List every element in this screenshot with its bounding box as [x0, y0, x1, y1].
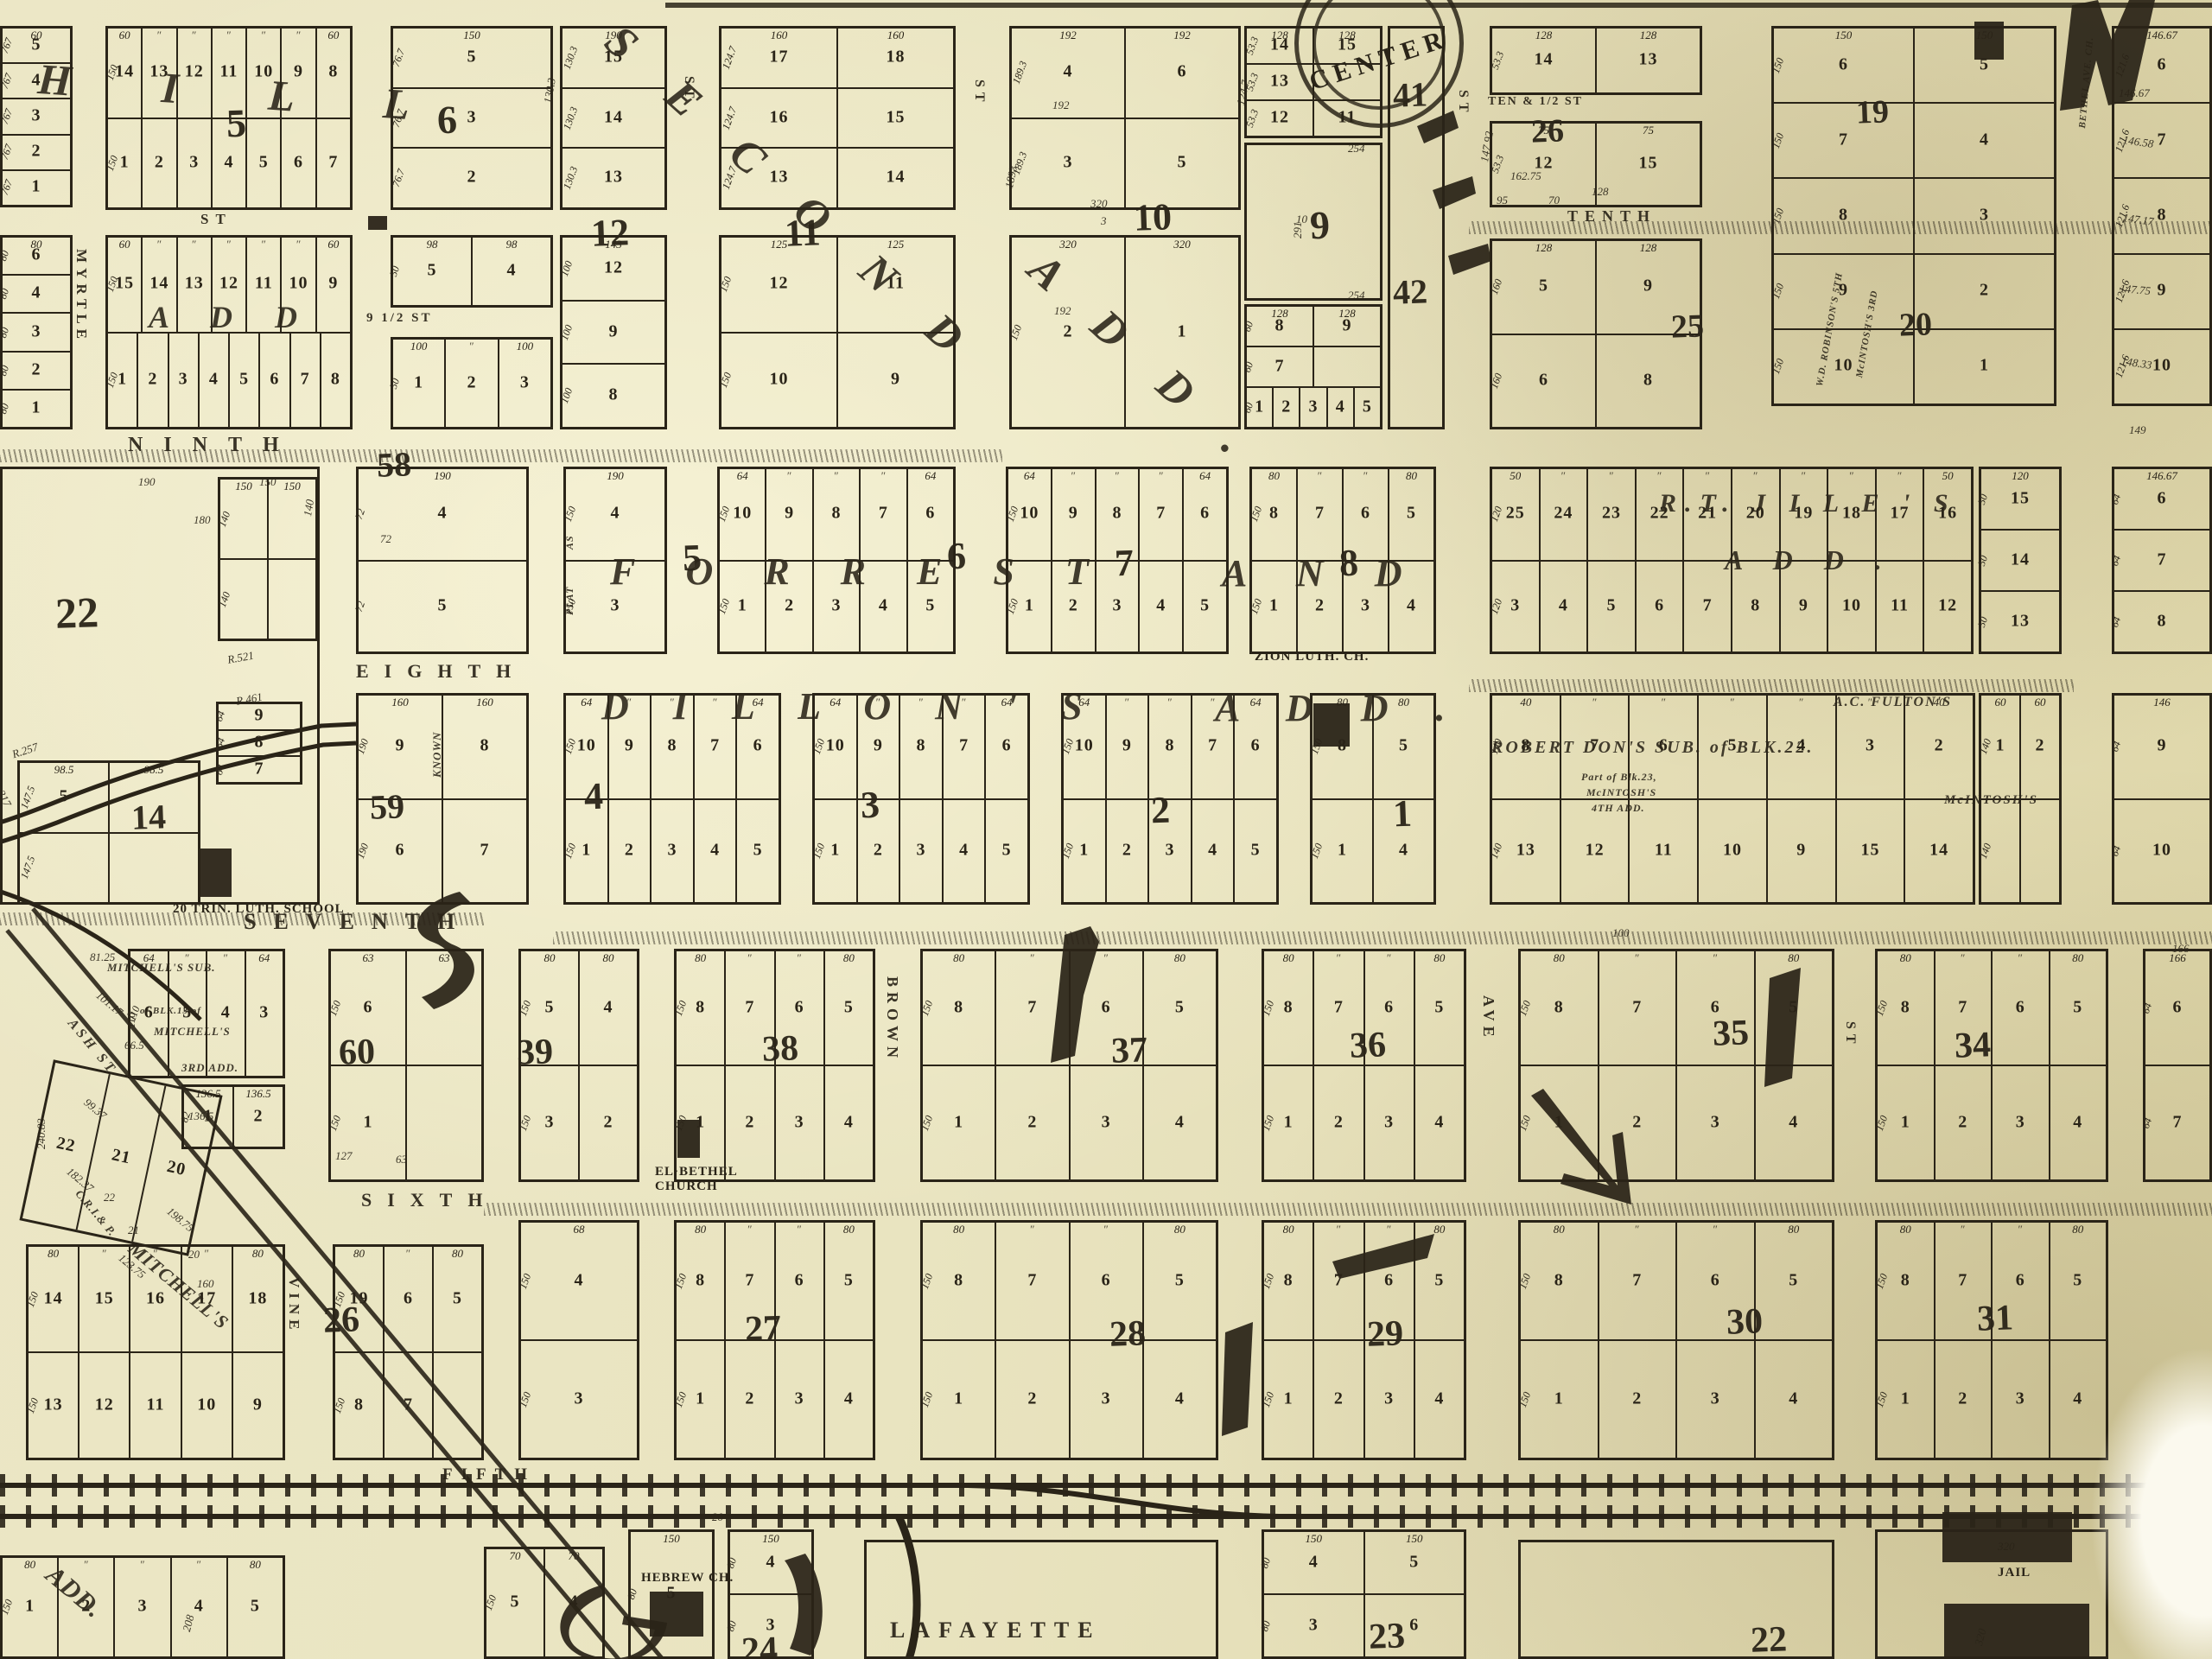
lot-number: 2 — [1314, 1389, 1363, 1408]
lot-cell: 3 — [1069, 1066, 1142, 1179]
lot-number: 6 — [1344, 504, 1388, 524]
lot-cell: 4 — [1138, 562, 1182, 652]
lot-cell: 864 — [219, 731, 300, 756]
lot-number: 3 — [1096, 595, 1139, 615]
print-smudge — [484, 1203, 2212, 1216]
lot-number: 3 — [566, 595, 664, 615]
lot-cell: 17160124.7 — [721, 29, 836, 87]
city-block: 8801507″6″5801150234 — [1875, 1220, 2108, 1460]
lot-number: 12 — [721, 274, 836, 294]
dimension-number: 10 — [1296, 213, 1307, 226]
landmark-label: EL·BETHEL CHURCH — [655, 1165, 738, 1194]
lot-dim-width: 60 — [108, 238, 141, 251]
lot-number: 3 — [1071, 1112, 1142, 1132]
railroad-rail-upper — [0, 1483, 2212, 1488]
lot-number: 10 — [1699, 840, 1766, 860]
lot-number: 3 — [1677, 1389, 1754, 1408]
lot-dim-ditto: ″ — [776, 1223, 823, 1236]
lot-cell: 13150 — [29, 1353, 78, 1458]
block-row: 1150234 — [1878, 1339, 2106, 1458]
lot-number: 15 — [838, 107, 953, 127]
block-number: 28 — [1109, 1313, 1147, 1355]
lot-number: 3 — [169, 369, 198, 389]
lot-dim-ditto: ″ — [282, 29, 315, 42]
lot-dim-width: 98 — [393, 238, 471, 251]
lot-cell: 4 — [1191, 800, 1234, 903]
lot-cell: 3 — [1363, 1341, 1414, 1458]
lot-cell: 4 — [1142, 1066, 1216, 1179]
lot-number: 9 — [766, 504, 811, 524]
lot-number: 12 — [563, 257, 664, 277]
lot-number: 3 — [499, 372, 550, 392]
city-block: 1214310091008100 — [560, 235, 667, 429]
lot-dim-ditto: ″ — [1599, 1223, 1676, 1236]
lot-number: 7 — [1298, 504, 1342, 524]
block-row: 1150234 — [923, 1339, 1216, 1458]
landmark-label: HEBREW CH. — [641, 1571, 734, 1586]
city-block: 151205014501350 — [1979, 467, 2062, 654]
dimension-number: 63 — [396, 1153, 407, 1166]
lot-cell: 8″ — [1147, 696, 1191, 798]
print-smudge — [1469, 679, 2074, 692]
lot-number: 6 — [1071, 1270, 1142, 1290]
lot-dim-ditto: ″ — [1314, 1223, 1363, 1236]
lot-dim-width: 146.67 — [2114, 469, 2209, 483]
lot-cell: 2″ — [444, 340, 497, 427]
lot-number: 7 — [996, 1270, 1068, 1290]
lot-cell: 1480150 — [29, 1247, 78, 1351]
lot-cell: 240 — [1904, 696, 1973, 798]
lot-number: 5 — [1184, 595, 1226, 615]
block-row: 415080 — [730, 1532, 811, 1593]
lot-dim-width: 150 — [393, 29, 550, 42]
landmark-building — [1313, 703, 1350, 747]
street-label: MYRTLE — [73, 249, 90, 344]
lot-cell: 2 — [1598, 1066, 1676, 1179]
lot-number: 5 — [1588, 595, 1635, 615]
street-label: EIGHTH — [356, 660, 526, 683]
lot-cell: 7″ — [1138, 469, 1182, 560]
lot-number: 2 — [143, 152, 175, 172]
lot-cell: 15 — [836, 89, 953, 148]
lot-cell: 6146.6764 — [2114, 469, 2209, 529]
lot-number: 2 — [393, 168, 550, 188]
print-smudge — [0, 449, 1002, 462]
lot-dim-width: 160 — [721, 29, 836, 42]
lot-cell: 5 — [228, 334, 258, 428]
block-row: 1150234 — [677, 1339, 873, 1458]
lot-cell: 964 — [219, 704, 300, 729]
dimension-number: 147.75 — [2120, 282, 2152, 298]
lot-cell: 13130.3 — [563, 149, 664, 207]
lot-number: 4 — [1192, 840, 1234, 860]
lot-cell: 468150 — [521, 1223, 637, 1339]
lot-dim-width: 100 — [499, 340, 550, 353]
city-block: 41508051503806 — [1262, 1529, 1466, 1659]
lot-number: 3 — [1300, 397, 1325, 416]
lot-dim-width: 80 — [1415, 951, 1464, 965]
lot-number: 7 — [1684, 595, 1731, 615]
lot-number: 4 — [213, 152, 245, 172]
block-row: 764 — [219, 755, 300, 782]
lot-cell: 880150 — [1252, 469, 1296, 560]
lot-number: 6 — [260, 369, 289, 389]
lot-cell: 580 — [1754, 951, 1833, 1065]
lot-dim-ditto: ″ — [1935, 951, 1992, 965]
lot-dim-width: 60 — [317, 238, 350, 251]
landmark-building — [1944, 1604, 2089, 1657]
lot-dim-width: 80 — [1144, 1223, 1216, 1236]
lot-number: 1 — [1915, 356, 2054, 376]
street-label: 9 1/2 ST — [366, 311, 433, 326]
dimension-number: 150 — [259, 475, 276, 489]
lot-cell: 598.5147.5 — [20, 763, 108, 832]
lot-number: 6 — [1126, 62, 1238, 82]
lot-cell: 4 — [1754, 1341, 1833, 1458]
lot-number: 5 — [1492, 276, 1595, 296]
lot-number: 4 — [1756, 1389, 1833, 1408]
lot-number: 6 — [385, 1288, 432, 1308]
lot-cell: 280 — [3, 353, 70, 389]
street-label: ST — [971, 79, 987, 107]
lot-number: 8 — [321, 369, 350, 389]
dimension-number: 240.83 — [35, 1118, 48, 1149]
lot-cell: 10 — [181, 1353, 232, 1458]
lot-dim-width: 80 — [3, 238, 70, 251]
city-block: 8801507″6″5801150234 — [1875, 949, 2108, 1182]
block-number: 5 — [682, 536, 702, 581]
lot-cell: 150140 — [220, 480, 267, 558]
lot-dim-width: 80 — [1521, 951, 1598, 965]
lot-dim-width: 128 — [1492, 29, 1595, 42]
lot-number: 10 — [182, 1395, 232, 1414]
lot-number: 3 — [1149, 840, 1191, 860]
lot-dim-ditto: ″ — [996, 951, 1068, 965]
lot-number: 9 — [609, 736, 651, 756]
lot-cell: 5 — [1233, 800, 1276, 903]
block-number: 7 — [1114, 541, 1135, 586]
lot-dim-ditto: ″ — [1935, 1223, 1992, 1236]
lot-number: 8 — [814, 504, 859, 524]
lot-number: 5 — [2050, 1270, 2107, 1290]
lot-number: 6 — [1365, 1270, 1414, 1290]
lot-cell: 9 — [1766, 800, 1835, 903]
lot-number: 5 — [393, 47, 550, 67]
lot-dim-ditto: ″ — [726, 1223, 773, 1236]
lot-number: 6 — [1235, 736, 1276, 756]
lot-cell: 3189.3 — [1012, 119, 1124, 208]
lot-number: 7 — [726, 997, 773, 1017]
print-smudge — [1469, 221, 2212, 234]
lot-cell: 3 — [168, 334, 198, 428]
lot-cell: 1253.3 — [1247, 101, 1313, 136]
lot-number: 12 — [213, 274, 245, 294]
addition-name: A D D . — [1725, 544, 1894, 576]
landmark-building — [368, 216, 387, 230]
dimension-number: 320 — [1090, 197, 1108, 211]
lot-dim-width: 128 — [1597, 241, 1700, 255]
lot-number: 2 — [2021, 736, 2059, 756]
block-row: 71504 — [1774, 102, 2054, 177]
lot-number: 4 — [521, 1270, 637, 1290]
addition-name: A D D — [149, 299, 315, 335]
lot-dim-width: 64 — [720, 469, 765, 483]
lot-cell: 4 — [823, 1066, 873, 1179]
lot-cell: 160 — [1247, 388, 1272, 427]
lot-number: 7 — [1599, 997, 1676, 1017]
lot-dim-ditto: ″ — [1107, 696, 1148, 709]
lot-number: 4 — [200, 369, 228, 389]
block-row: 8801507″6″580 — [1878, 951, 2106, 1065]
lot-dim-width: 136.5 — [234, 1087, 283, 1101]
lot-cell: 276.7 — [393, 149, 550, 207]
lot-cell: 3 — [1675, 1341, 1754, 1458]
landmark-building — [199, 849, 232, 897]
lot-cell: 580 — [1142, 951, 1216, 1065]
lot-number: 4 — [825, 1389, 873, 1408]
lot-cell: 160140 — [1981, 696, 2019, 798]
lot-cell: 8 — [1595, 335, 1700, 428]
lot-dim-width: 60 — [2021, 696, 2059, 709]
lot-number: 2 — [1298, 595, 1342, 615]
lot-cell: 2 — [1313, 1341, 1363, 1458]
lot-dim-ditto: ″ — [1588, 469, 1635, 483]
lot-cell: 580 — [1388, 469, 1433, 560]
lot-number: 5 — [1144, 1270, 1216, 1290]
block-number: 14 — [130, 796, 167, 837]
lot-cell: 380 — [3, 314, 70, 350]
lot-number: 4 — [359, 504, 526, 524]
lot-cell: 1512050 — [1981, 469, 2059, 529]
lot-number: 6 — [1071, 997, 1142, 1017]
lot-number: 13 — [178, 274, 211, 294]
lot-cell: 2 — [1598, 1341, 1676, 1458]
lot-cell: 8 — [320, 334, 350, 428]
lot-number: 3 — [1837, 736, 1904, 756]
lot-dim-width: 128 — [1314, 307, 1380, 321]
block-number: 4 — [583, 774, 604, 819]
lot-cell: 7150 — [1774, 104, 1913, 177]
lot-cell — [2019, 800, 2059, 903]
block-number: 8 — [1338, 541, 1359, 586]
lot-cell: 2 — [1272, 388, 1299, 427]
lot-dim-ditto: ″ — [1344, 469, 1388, 483]
lot-number: 8 — [219, 732, 300, 752]
lot-number: 8 — [563, 385, 664, 405]
lot-dim-width: 80 — [923, 951, 995, 965]
lot-number: 4 — [2050, 1112, 2107, 1132]
dimension-number: 3 — [1101, 214, 1107, 228]
lot-number: 4 — [1541, 595, 1587, 615]
lot-number: 4 — [1415, 1389, 1464, 1408]
lot-dim-width: 80 — [1144, 951, 1216, 965]
lot-cell: 2 — [724, 1066, 773, 1179]
lot-dim-width: 80 — [434, 1247, 481, 1261]
lot-number: 12 — [79, 1395, 129, 1414]
lot-dim-width: 150 — [1365, 1532, 1465, 1546]
block-row: 1767 — [3, 169, 70, 205]
block-row: 914664 — [2114, 696, 2209, 798]
lot-number: 9 — [233, 1395, 283, 1414]
lot-number: 7 — [2145, 1112, 2209, 1132]
block-row: 17160124.718160 — [721, 29, 953, 87]
lot-number: 5 — [1126, 152, 1238, 172]
landmark-building — [677, 1120, 700, 1158]
lot-number: 24 — [1541, 504, 1587, 524]
lot-number: 5 — [228, 1596, 283, 1616]
lot-number: 15 — [1597, 153, 1700, 173]
block-row: 4150805150 — [1264, 1532, 1464, 1593]
city-block: 8801507″6″5801150234 — [920, 1220, 1218, 1460]
block-number: 25 — [1670, 307, 1705, 346]
lot-number: 9 — [1768, 840, 1835, 860]
map-top-border — [665, 3, 2212, 8]
lot-dim-width: 68 — [521, 1223, 637, 1236]
block-row: 1150234 — [1521, 1065, 1832, 1179]
lot-number: 6 — [986, 736, 1027, 756]
lot-dim-depth: 140 — [216, 589, 233, 608]
lot-dim-width: 50 — [1924, 469, 1971, 483]
lot-number: 3 — [1365, 1389, 1414, 1408]
lot-number: 9 — [2114, 736, 2209, 756]
lot-cell: 764 — [219, 757, 300, 782]
lot-dim-width: 98.5 — [110, 763, 198, 777]
lot-cell: 764 — [2145, 1066, 2209, 1179]
lot-number: 9 — [838, 369, 953, 389]
lot-number: 6 — [776, 997, 823, 1017]
lot-dim-ditto: ″ — [776, 951, 823, 965]
dimension-number: 140 — [301, 499, 317, 518]
lot-number: 11 — [130, 1395, 180, 1414]
lot-dim-ditto: ″ — [1877, 469, 1923, 483]
lot-number: 2 — [1935, 1112, 1992, 1132]
lot-cell: 15 — [1835, 800, 1904, 903]
lot-cell: 3120 — [1492, 562, 1539, 652]
lot-dim-ditto: ″ — [1071, 951, 1142, 965]
lot-number: 9 — [1774, 281, 1913, 301]
lot-dim-width: 150 — [730, 1532, 811, 1546]
lot-cell: 2 — [995, 1066, 1068, 1179]
lot-number: 8 — [1096, 504, 1139, 524]
lot-cell: 760 — [1247, 347, 1313, 386]
block-row: 1602345 — [1247, 386, 1380, 427]
lot-cell: 9100 — [563, 302, 664, 364]
lot-number: 6 — [2114, 488, 2209, 508]
lot-dim-width: 80 — [677, 951, 724, 965]
block-row: 140 — [220, 558, 315, 639]
lot-number: 2 — [1052, 595, 1095, 615]
lot-cell: 7 — [289, 334, 320, 428]
lot-cell: 6″ — [774, 1223, 823, 1339]
lot-cell: 880150 — [1878, 1223, 1934, 1339]
lot-cell: 580 — [2049, 951, 2107, 1065]
lot-cell: 2 — [995, 1341, 1068, 1458]
lot-number: 3 — [652, 840, 693, 860]
block-row: 8128609128 — [1247, 307, 1380, 346]
block-row: 616664 — [2145, 951, 2209, 1065]
lot-number: 6 — [1677, 1270, 1754, 1290]
lot-cell: 1150 — [1878, 1341, 1934, 1458]
lot-cell: 1150 — [1313, 800, 1372, 903]
lot-cell: 580 — [226, 1558, 283, 1656]
lot-dim-width: 80 — [228, 1558, 283, 1572]
lot-cell: 4 — [1539, 562, 1587, 652]
block-number: 1 — [1392, 791, 1413, 836]
lot-cell: 1450 — [1981, 531, 2059, 590]
lot-dim-width: 128 — [1597, 29, 1700, 42]
lot-cell: 1150 — [1264, 1066, 1313, 1179]
lot-dim-ditto: ″ — [1630, 696, 1697, 709]
block-row: 1150234 — [1264, 1339, 1464, 1458]
lot-number: 6 — [282, 152, 315, 172]
lot-number: 11 — [247, 274, 280, 294]
block-number: 34 — [1954, 1024, 1992, 1066]
lot-cell: 9″ — [1051, 469, 1095, 560]
dimension-number: 21 — [128, 1224, 139, 1237]
lot-dim-width: 80 — [2050, 1223, 2107, 1236]
lot-cell: 63 — [405, 951, 481, 1065]
lot-cell: 1350 — [1981, 592, 2059, 652]
lot-cell: 1150 — [1521, 1341, 1598, 1458]
print-smudge — [553, 931, 2212, 944]
lot-cell: 4 — [1913, 104, 2054, 177]
lot-number: 9 — [858, 736, 899, 756]
landmark-label: JAIL — [1998, 1566, 2031, 1580]
lot-cell: 5 — [1124, 119, 1238, 208]
block-number: 36 — [1349, 1024, 1387, 1066]
block-row: 8801507″6″580 — [1521, 951, 1832, 1065]
block-row: 2767 — [3, 134, 70, 169]
lot-cell: 13140 — [1492, 800, 1560, 903]
lot-number: 4 — [861, 595, 906, 615]
lot-cell: 4 — [1142, 1341, 1216, 1458]
city-block: 8801507″6″5801150234 — [1518, 949, 1834, 1182]
lot-number: 2 — [609, 840, 651, 860]
dimension-number: 162.75 — [1510, 169, 1541, 183]
lot-number: 8 — [1597, 370, 1700, 390]
lot-dim-width: 80 — [1389, 469, 1433, 483]
lot-cell: 3 — [774, 1341, 823, 1458]
block-row: 147.5 — [20, 832, 198, 903]
lot-dim-width: 80 — [3, 1558, 57, 1572]
lot-number: 8 — [652, 736, 693, 756]
block-number: 42 — [1392, 270, 1428, 312]
lot-cell: 880150 — [1878, 951, 1934, 1065]
lot-cell: 764 — [2114, 531, 2209, 590]
lot-number: 3 — [1365, 1112, 1414, 1132]
block-row: 1150234 — [923, 1065, 1216, 1179]
lot-cell: 1 — [1913, 330, 2054, 404]
lot-number: 4 — [944, 840, 985, 860]
lot-dim-width: 150 — [631, 1532, 712, 1546]
lot-cell: 3″ — [1835, 696, 1904, 798]
lot-dim-width: 98.5 — [20, 763, 108, 777]
lot-dim-ditto: ″ — [446, 340, 497, 353]
dimension-number: 254 — [1348, 289, 1365, 302]
lot-dim-width: 80 — [1521, 1223, 1598, 1236]
lot-number: 2 — [1107, 840, 1148, 860]
lot-cell: 10 — [1697, 800, 1766, 903]
lot-number: 7 — [996, 997, 1068, 1017]
lot-cell: 880150 — [1264, 951, 1313, 1065]
lot-number: 7 — [1140, 504, 1182, 524]
lot-cell: 1150 — [1878, 1066, 1934, 1179]
lot-cell: 9128 — [1313, 307, 1380, 346]
lot-number: 8 — [443, 736, 526, 756]
lot-dim-ditto: ″ — [143, 29, 175, 42]
landmark-label: ZION LUTH. CH. — [1255, 650, 1369, 664]
lot-dim-width: 128 — [1247, 307, 1313, 321]
